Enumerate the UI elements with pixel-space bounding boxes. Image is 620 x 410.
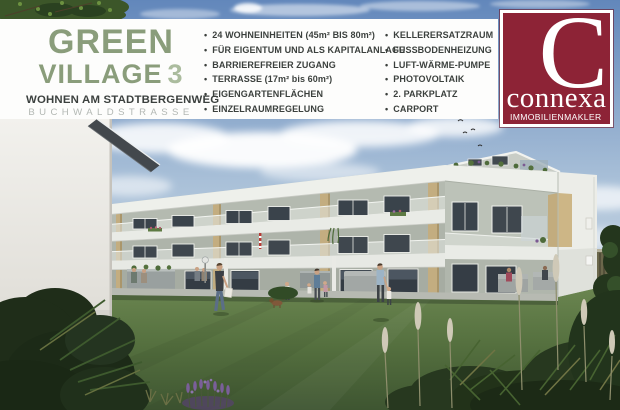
logo-subtitle: WOHNEN AM STADTBERGENWEG bbox=[26, 95, 196, 106]
feature-item: LUFT-WÄRME-PUMPE bbox=[385, 57, 493, 72]
feature-item: FÜR EIGENTUM UND ALS KAPITALANLAGE bbox=[204, 43, 405, 58]
feature-item: 24 WOHNEINHEITEN (45m² BIS 80m²) bbox=[204, 28, 405, 43]
logo-village-text: VILLAGE bbox=[38, 59, 162, 89]
feature-list-right: KELLERERSATZRAUM FUSSBODENHEIZUNG LUFT-W… bbox=[385, 28, 493, 116]
feature-item: 2. PARKPLATZ bbox=[385, 87, 493, 102]
feature-item: FUSSBODENHEIZUNG bbox=[385, 43, 493, 58]
feature-item: CARPORT bbox=[385, 101, 493, 116]
feature-item: EINZELRAUMREGELUNG bbox=[204, 101, 405, 116]
logo-number: 3 bbox=[167, 59, 183, 89]
feature-item: TERRASSE (17m² bis 60m²) bbox=[204, 72, 405, 87]
building-end-face bbox=[558, 172, 597, 297]
banner: GREEN VILLAGE3 WOHNEN AM STADTBERGENWEG … bbox=[0, 19, 498, 119]
feature-item: BARRIEREFREIER ZUGANG bbox=[204, 57, 405, 72]
logo-title-line2: VILLAGE3 bbox=[26, 61, 196, 88]
broker-name: connexa bbox=[503, 84, 610, 113]
feature-item: EIGENGARTENFLÄCHEN bbox=[204, 87, 405, 102]
logo-title: GREEN bbox=[26, 25, 196, 59]
broker-tagline: IMMOBILIENMAKLER bbox=[510, 113, 602, 122]
lawn-bush bbox=[268, 287, 298, 300]
feature-item: PHOTOVOLTAIK bbox=[385, 72, 493, 87]
logo-street: BUCHWALDSTRASSE bbox=[26, 108, 196, 118]
flyer: GREEN VILLAGE3 WOHNEN AM STADTBERGENWEG … bbox=[0, 0, 620, 410]
broker-logo: C connexa IMMOBILIENMAKLER bbox=[500, 10, 613, 127]
feature-item: KELLERERSATZRAUM bbox=[385, 28, 493, 43]
feature-list-left: 24 WOHNEINHEITEN (45m² BIS 80m²) FÜR EIG… bbox=[204, 28, 405, 116]
project-logo: GREEN VILLAGE3 WOHNEN AM STADTBERGENWEG … bbox=[26, 25, 196, 118]
